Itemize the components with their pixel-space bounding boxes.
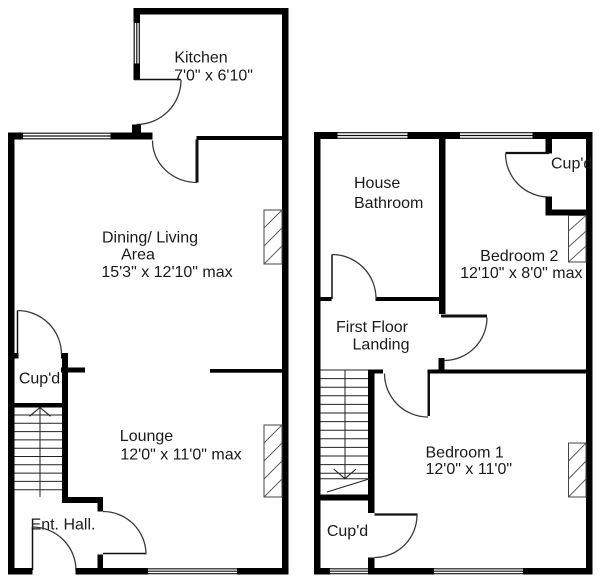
svg-text:12'0" x 11'0": 12'0" x 11'0" — [426, 461, 513, 478]
svg-text:Landing: Landing — [353, 337, 410, 354]
svg-text:12'0" x 11'0" max: 12'0" x 11'0" max — [120, 447, 241, 464]
svg-text:12'10" x 8'0" max: 12'10" x 8'0" max — [460, 265, 582, 282]
svg-text:Kitchen: Kitchen — [174, 50, 227, 67]
svg-text:First Floor: First Floor — [336, 319, 409, 336]
svg-text:Cup'd: Cup'd — [551, 156, 592, 173]
svg-text:15'3" x 12'10" max: 15'3" x 12'10" max — [101, 264, 232, 281]
svg-text:Lounge: Lounge — [120, 428, 173, 445]
svg-text:Area: Area — [121, 247, 155, 264]
svg-text:7'0" x 6'10": 7'0" x 6'10" — [174, 68, 253, 85]
svg-text:Bathroom: Bathroom — [354, 195, 423, 212]
svg-text:House: House — [354, 175, 400, 192]
svg-text:Dining/ Living: Dining/ Living — [102, 230, 198, 247]
svg-text:Cup'd: Cup'd — [19, 371, 60, 388]
svg-text:Bedroom 2: Bedroom 2 — [480, 248, 558, 265]
svg-text:Cup'd: Cup'd — [327, 523, 368, 540]
svg-text:Bedroom 1: Bedroom 1 — [426, 445, 504, 462]
svg-text:Ent. Hall.: Ent. Hall. — [31, 517, 96, 534]
